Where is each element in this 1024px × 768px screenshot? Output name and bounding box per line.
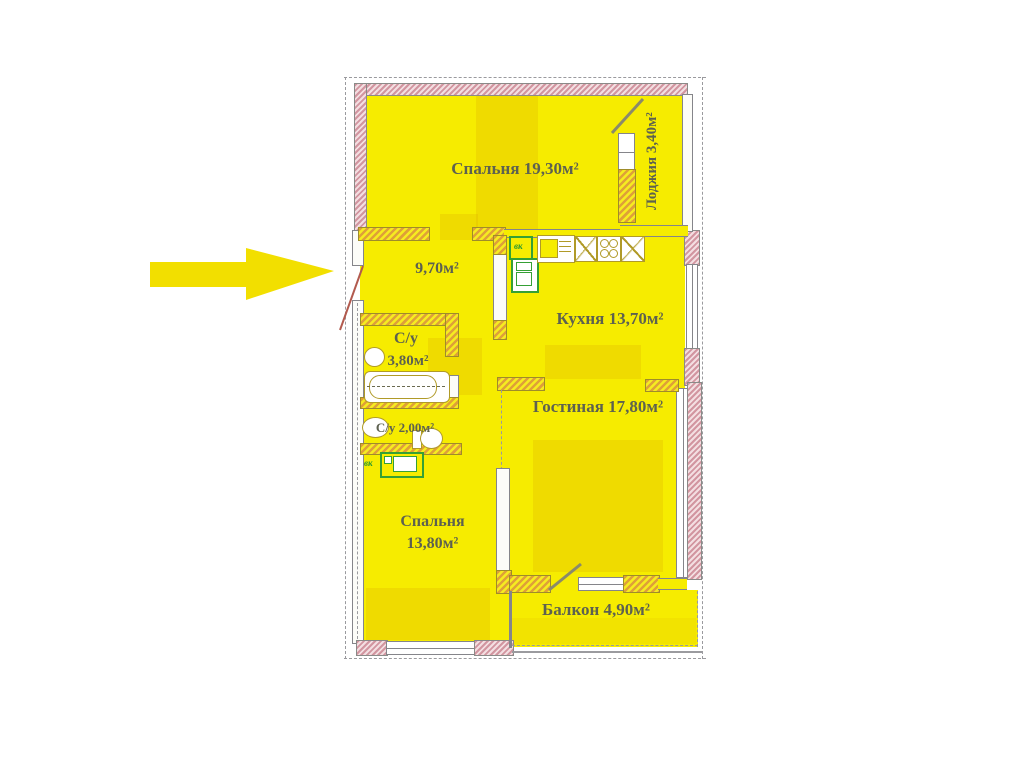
label-bedroom2: Спальня 13,80м² bbox=[380, 511, 485, 555]
vent-shaft-box: вк bbox=[509, 236, 533, 260]
wall-stub-kitchen-living-right bbox=[645, 379, 679, 392]
wall-stub-kitchen-living-left bbox=[497, 377, 545, 391]
wall-balcony-right-hatch bbox=[623, 575, 660, 593]
label-bedroom2-area: 13,80м² bbox=[380, 533, 485, 555]
fridge-icon bbox=[511, 258, 539, 293]
drainer-line bbox=[559, 241, 571, 242]
axis-line-right bbox=[702, 77, 703, 659]
label-balcony: Балкон 4,90м² bbox=[528, 600, 664, 620]
fridge-bottom bbox=[516, 272, 532, 286]
wall-exterior-left-lower bbox=[352, 300, 364, 644]
loggia-cabinet bbox=[618, 133, 635, 171]
wall-exterior-right-2 bbox=[684, 348, 700, 386]
stove-icon bbox=[575, 236, 597, 262]
vent-label-2: вк bbox=[364, 458, 373, 468]
washing-machine-icon bbox=[380, 452, 424, 478]
opening-living-left bbox=[501, 390, 502, 470]
axis-line-top bbox=[344, 77, 706, 78]
wall-balcony-left-hatch bbox=[509, 575, 551, 593]
wall-exterior-left-bedroom bbox=[354, 83, 367, 235]
label-bedroom2-name: Спальня bbox=[380, 511, 485, 533]
window-bedroom2 bbox=[386, 641, 476, 655]
balcony-slab-line bbox=[512, 651, 702, 653]
wall-bedroom1-bottom-left bbox=[358, 227, 430, 241]
label-bathroom-area: 3,80м² bbox=[378, 353, 438, 370]
label-living: Гостиная 17,80м² bbox=[522, 397, 674, 417]
window-balcony bbox=[578, 577, 625, 591]
cooktop-icon bbox=[597, 236, 621, 262]
bathtub-inner bbox=[369, 375, 437, 399]
wall-balcony-thin bbox=[658, 578, 687, 590]
washer-dial bbox=[384, 456, 392, 464]
shade-strip bbox=[366, 588, 490, 640]
label-bedroom1: Спальня 19,30м² bbox=[430, 159, 600, 179]
wall-exterior-right-living bbox=[687, 382, 702, 580]
axis-line-left bbox=[345, 77, 346, 659]
bathtub-icon bbox=[364, 371, 450, 403]
label-hallway: 9,70м² bbox=[403, 260, 471, 278]
wall-hallway-kitchen-hatch-bottom bbox=[493, 320, 507, 340]
wall-exterior-top bbox=[356, 83, 688, 96]
wall-bedroom2-living bbox=[496, 468, 510, 576]
shade-strip bbox=[533, 440, 663, 572]
wall-exterior-bottom-right bbox=[474, 640, 514, 656]
wall-exterior-bottom-left bbox=[356, 640, 388, 656]
bathtub-centerline bbox=[367, 386, 445, 387]
oven-icon bbox=[621, 236, 645, 262]
wall-centerline bbox=[357, 303, 358, 639]
wall-loggia-divider bbox=[618, 169, 636, 223]
shade-strip bbox=[545, 345, 641, 379]
label-bathroom-name: С/у bbox=[386, 330, 426, 348]
label-wc: С/у 2,00м² bbox=[366, 420, 444, 436]
washer-door bbox=[393, 456, 417, 472]
wall-hallway-kitchen-hatch-top bbox=[493, 235, 507, 255]
balcony-edge-left bbox=[509, 591, 512, 648]
shade-strip bbox=[512, 618, 696, 644]
wall-bathroom-right-top bbox=[445, 313, 459, 357]
drainer-line bbox=[559, 251, 571, 252]
window-kitchen bbox=[686, 264, 698, 350]
floor-plan-page: { "plan": { "type": "apartment-floor-pla… bbox=[0, 0, 1024, 768]
vent-label: вк bbox=[514, 241, 523, 251]
balcony-edge-right bbox=[697, 591, 698, 647]
drainer-line bbox=[559, 246, 571, 247]
label-kitchen: Кухня 13,70м² bbox=[540, 309, 680, 329]
label-loggia: Лоджия 3,40м² bbox=[644, 96, 661, 226]
balcony-edge-bottom bbox=[512, 645, 698, 646]
entrance-arrow-icon bbox=[150, 248, 334, 300]
fridge-top bbox=[516, 262, 532, 271]
sink-basin bbox=[540, 239, 558, 258]
wall-loggia-right bbox=[682, 94, 693, 232]
kitchen-sink-icon bbox=[537, 235, 575, 263]
axis-line-bottom bbox=[344, 658, 706, 659]
